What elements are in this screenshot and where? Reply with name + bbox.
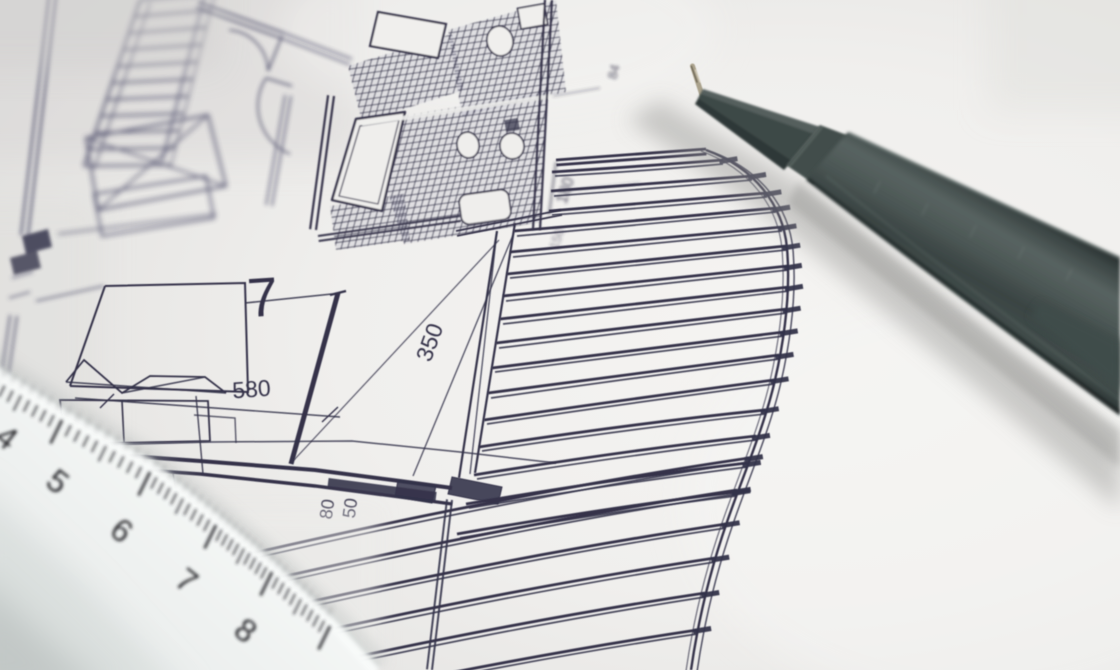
svg-text:7: 7: [245, 265, 280, 329]
svg-text:580: 580: [231, 375, 271, 404]
